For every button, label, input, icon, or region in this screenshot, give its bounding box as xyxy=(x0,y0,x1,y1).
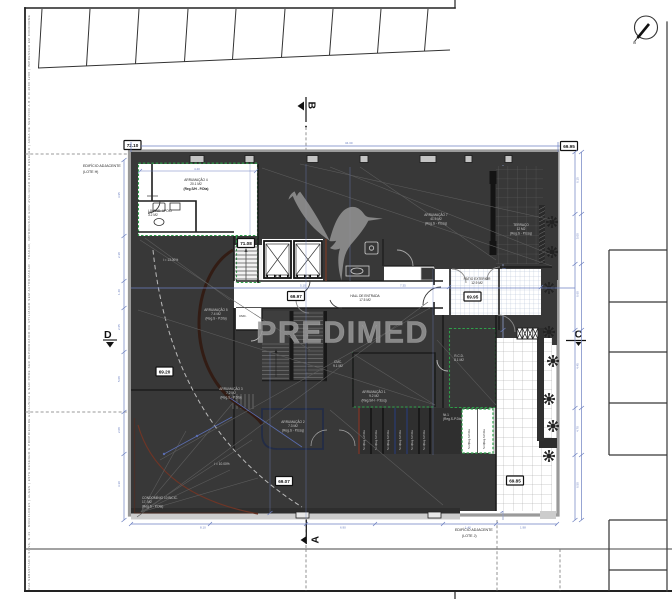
svg-text:6.60: 6.60 xyxy=(576,291,580,297)
svg-text:6.50: 6.50 xyxy=(576,482,580,488)
svg-text:i = 13.00%: i = 13.00% xyxy=(163,258,178,262)
svg-text:(Reg.S/H - P.Esq): (Reg.S/H - P.Esq) xyxy=(361,398,386,402)
svg-text:3.30: 3.30 xyxy=(117,481,121,487)
svg-text:69.97: 69.97 xyxy=(290,294,302,299)
svg-text:1.98: 1.98 xyxy=(520,526,526,530)
svg-text:5.10: 5.10 xyxy=(300,284,306,288)
svg-text:Nt.1|Reg.S-P.Dta: Nt.1|Reg.S-P.Dta xyxy=(386,430,390,450)
svg-text:A: A xyxy=(310,536,322,544)
svg-text:6.90: 6.90 xyxy=(340,526,346,530)
svg-text:3.95: 3.95 xyxy=(117,192,121,198)
svg-text:(Reg.S - P.Esq): (Reg.S - P.Esq) xyxy=(425,221,447,225)
svg-text:Nt.1|Reg.S-P.Dta: Nt.1|Reg.S-P.Dta xyxy=(398,430,402,450)
svg-text:(LOTE H): (LOTE H) xyxy=(83,170,98,174)
svg-text:69.20: 69.20 xyxy=(159,369,171,374)
svg-text:(Reg.S - P.Esq): (Reg.S - P.Esq) xyxy=(282,428,304,432)
svg-text:8.1 M2: 8.1 M2 xyxy=(454,358,464,362)
svg-text:(LOTE J): (LOTE J) xyxy=(462,534,477,538)
svg-text:(Reg.S - P.Esq): (Reg.S - P.Esq) xyxy=(510,231,532,235)
svg-text:(Reg.S-P.Dta): (Reg.S-P.Dta) xyxy=(443,417,463,421)
svg-text:(Reg.S - P.Dta): (Reg.S - P.Dta) xyxy=(142,504,163,508)
svg-text:72.10: 72.10 xyxy=(127,143,139,148)
svg-text:2.38: 2.38 xyxy=(117,252,121,258)
svg-text:69.95: 69.95 xyxy=(563,144,575,149)
svg-text:4.45: 4.45 xyxy=(576,363,580,369)
svg-text:5.00: 5.00 xyxy=(576,233,580,239)
svg-text:5.08: 5.08 xyxy=(117,376,121,382)
svg-text:PREDIMED: PREDIMED xyxy=(256,316,429,350)
svg-text:EDIFÍCIO ADJACENTE: EDIFÍCIO ADJACENTE xyxy=(83,164,121,168)
svg-text:(Reg.S/H - P.Dta): (Reg.S/H - P.Dta) xyxy=(184,187,209,191)
svg-text:Nt.1|Reg.S-P.Dta: Nt.1|Reg.S-P.Dta xyxy=(374,430,378,450)
svg-text:6.15: 6.15 xyxy=(576,177,580,183)
svg-text:7.35: 7.35 xyxy=(400,284,406,288)
svg-text:Nt.3|Reg.S-P.Dta: Nt.3|Reg.S-P.Dta xyxy=(482,429,486,449)
svg-text:69.07: 69.07 xyxy=(278,479,290,484)
svg-text:D: D xyxy=(104,329,112,341)
svg-text:2.65: 2.65 xyxy=(117,324,121,330)
svg-text:12.9 M2: 12.9 M2 xyxy=(471,281,483,285)
svg-text:Nt.2|Reg.S-P.Dta: Nt.2|Reg.S-P.Dta xyxy=(467,429,471,449)
svg-text:17.5 M2: 17.5 M2 xyxy=(359,298,371,302)
svg-text:1.40: 1.40 xyxy=(465,526,471,530)
svg-text:3.2 M2: 3.2 M2 xyxy=(148,213,158,217)
svg-text:B: B xyxy=(306,102,318,110)
svg-text:20.1 M2: 20.1 M2 xyxy=(190,182,202,186)
svg-text:4.40: 4.40 xyxy=(194,167,200,171)
svg-text:Nt.1|Reg.S-P.Dta: Nt.1|Reg.S-P.Dta xyxy=(422,430,426,450)
svg-text:Nt.1|Reg.S-P.Dta: Nt.1|Reg.S-P.Dta xyxy=(410,430,414,450)
svg-text:CMC.: CMC. xyxy=(239,314,247,318)
svg-text:71.08: 71.08 xyxy=(240,241,252,246)
svg-text:34.30: 34.30 xyxy=(345,141,353,145)
svg-text:1.40: 1.40 xyxy=(117,289,121,295)
svg-text:(Reg.S - P.Dta): (Reg.S - P.Dta) xyxy=(205,316,226,320)
svg-text:i = 10.00%: i = 10.00% xyxy=(214,462,229,466)
svg-text:69.95: 69.95 xyxy=(467,294,479,299)
svg-text:4.70: 4.70 xyxy=(576,426,580,432)
svg-text:8.10: 8.10 xyxy=(200,526,206,530)
svg-text:EDIFÍCIO ADJACENTE: EDIFÍCIO ADJACENTE xyxy=(455,528,493,532)
svg-text:N: N xyxy=(633,40,636,45)
svg-text:RUA SEBASTIAO E SILVA, N.43 -: RUA SEBASTIAO E SILVA, N.43 - MIRAFLORES… xyxy=(27,15,31,590)
svg-text:(Reg.S - P.Dta): (Reg.S - P.Dta) xyxy=(220,395,241,399)
svg-text:69.85: 69.85 xyxy=(509,478,521,483)
svg-text:9.1 M2: 9.1 M2 xyxy=(333,364,343,368)
svg-text:2.08: 2.08 xyxy=(117,427,121,433)
